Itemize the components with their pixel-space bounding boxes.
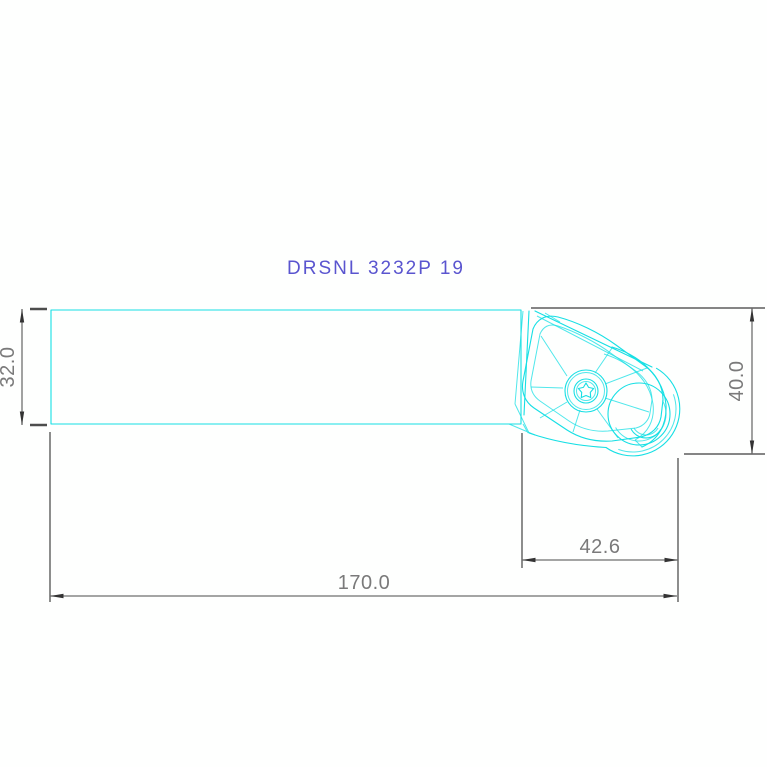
shank-outline xyxy=(51,310,529,433)
clamp-facet-lines xyxy=(531,336,649,438)
insert-outer-circle xyxy=(606,368,680,456)
torx-socket-icon xyxy=(578,383,593,398)
dimension-shank-height: 32.0 xyxy=(0,309,47,425)
arrowhead-down xyxy=(20,412,24,426)
clamp-screw xyxy=(565,370,607,412)
page-title: DRSNL 3232P 19 xyxy=(287,258,465,279)
clamp-body xyxy=(522,316,666,447)
arrowhead-up xyxy=(20,309,24,323)
insert-inner-arc xyxy=(616,401,666,441)
arrowhead-right xyxy=(664,594,678,598)
drawing-canvas: 32.0 40.0 42.6 170.0 DRSNL 3232P 19 xyxy=(0,0,767,767)
insert-chamfer-arc xyxy=(618,394,676,452)
insert-top-face-circle xyxy=(608,383,670,445)
arrowhead-right xyxy=(665,558,679,562)
cad-drawing: 32.0 40.0 42.6 170.0 DRSNL 3232P 19 xyxy=(0,0,767,767)
arrowhead-up xyxy=(750,308,754,322)
dim-label-head-length: 42.6 xyxy=(580,536,621,558)
tool-holder-geometry xyxy=(51,310,680,456)
dim-label-overall-height: 40.0 xyxy=(726,361,748,402)
dimension-head-length: 42.6 xyxy=(522,433,678,602)
arrowhead-left xyxy=(522,558,536,562)
arrowhead-down xyxy=(750,441,754,455)
dim-label-shank-height: 32.0 xyxy=(0,347,19,388)
dimension-overall-height: 40.0 xyxy=(531,308,765,454)
dim-label-overall-length: 170.0 xyxy=(338,572,391,594)
extension-lines xyxy=(522,433,678,602)
arrowhead-left xyxy=(50,594,64,598)
extension-ticks xyxy=(30,309,47,425)
dimension-overall-length: 170.0 xyxy=(50,432,677,602)
round-insert xyxy=(606,368,680,456)
